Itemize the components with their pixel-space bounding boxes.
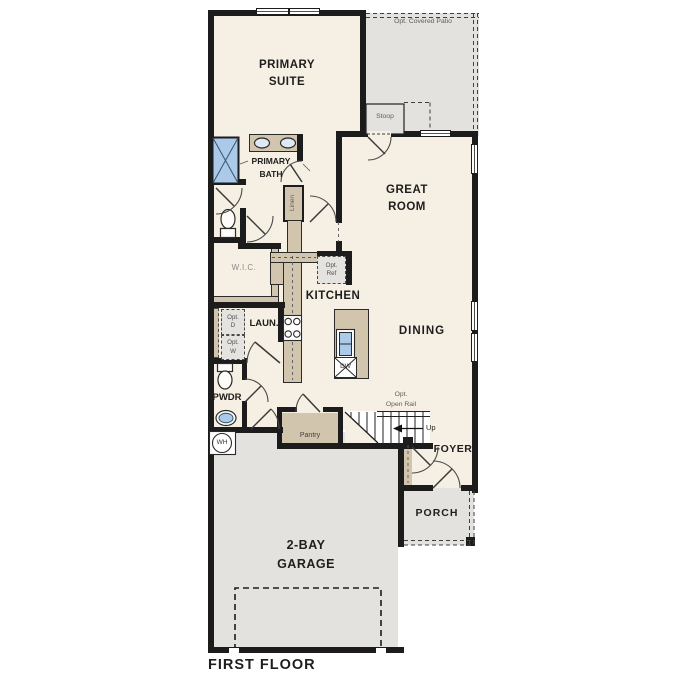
plan-title: FIRST FLOOR bbox=[208, 657, 368, 673]
wall-segment bbox=[208, 10, 366, 16]
wall-segment bbox=[277, 407, 282, 448]
opt-washer-box: Opt. W bbox=[221, 335, 245, 360]
dishwasher-label: DW bbox=[334, 363, 357, 370]
wall-segment bbox=[277, 443, 433, 449]
floor-plan: Opt. Ref Opt. D Opt. W PRIMARY SUITE Opt… bbox=[0, 0, 687, 687]
room-label-opt-covered-patio: Opt. Covered Patio bbox=[363, 18, 483, 25]
opt-dryer-box: Opt. D bbox=[221, 309, 245, 335]
wall-segment bbox=[346, 254, 352, 285]
wall-segment bbox=[461, 485, 478, 491]
opt-refrigerator-label: Opt. Ref bbox=[326, 262, 338, 279]
stairs-opt-open-rail-label: Opt. Open Rail bbox=[371, 390, 431, 410]
vanity-counter bbox=[249, 134, 302, 152]
wall-segment bbox=[208, 302, 285, 308]
hall-partition-wall bbox=[287, 220, 302, 254]
room-label-pantry: Pantry bbox=[288, 432, 332, 439]
stairs-up-label: Up bbox=[426, 423, 446, 432]
room-label-porch: PORCH bbox=[407, 507, 467, 519]
wall-segment bbox=[398, 443, 404, 547]
wall-segment bbox=[238, 243, 281, 249]
stairs-floor bbox=[345, 411, 430, 443]
wall-segment bbox=[472, 131, 478, 493]
garage-entry-door-wall bbox=[404, 443, 412, 485]
room-label-kitchen: KITCHEN bbox=[283, 290, 383, 302]
room-label-linen: Linen bbox=[285, 186, 301, 220]
wall-segment bbox=[208, 10, 214, 653]
pantry-floor bbox=[282, 413, 338, 444]
wall-segment bbox=[277, 407, 297, 412]
room-label-stoop: Stoop bbox=[365, 113, 405, 120]
room-label-laundry: LAUN. bbox=[244, 318, 284, 329]
room-label-powder: PWDR bbox=[206, 392, 248, 403]
wall-segment bbox=[403, 485, 433, 491]
room-label-great-room: GREAT ROOM bbox=[347, 182, 467, 217]
room-label-wic: W.I.C. bbox=[214, 263, 274, 272]
room-label-garage: 2-BAY GARAGE bbox=[246, 536, 366, 574]
room-label-primary-bath: PRIMARY BATH bbox=[231, 155, 311, 181]
room-label-dining: DINING bbox=[372, 325, 472, 337]
wall-segment bbox=[338, 407, 343, 448]
opt-refrigerator-box: Opt. Ref bbox=[317, 256, 346, 284]
water-heater-label: WH bbox=[212, 439, 232, 446]
wall-segment bbox=[336, 136, 342, 223]
room-label-foyer: FOYER bbox=[429, 443, 477, 455]
porch-post bbox=[466, 537, 475, 546]
kitchen-counter-main bbox=[283, 262, 302, 383]
opt-washer-label: Opt. W bbox=[227, 339, 239, 356]
opt-dryer-label: Opt. D bbox=[227, 314, 239, 331]
room-label-primary-suite: PRIMARY SUITE bbox=[217, 57, 357, 92]
wall-segment bbox=[240, 208, 246, 243]
wall-segment bbox=[391, 131, 478, 137]
wall-segment bbox=[242, 363, 247, 380]
wall-segment bbox=[208, 647, 404, 653]
wall-segment bbox=[242, 401, 247, 428]
wall-segment bbox=[403, 437, 413, 443]
